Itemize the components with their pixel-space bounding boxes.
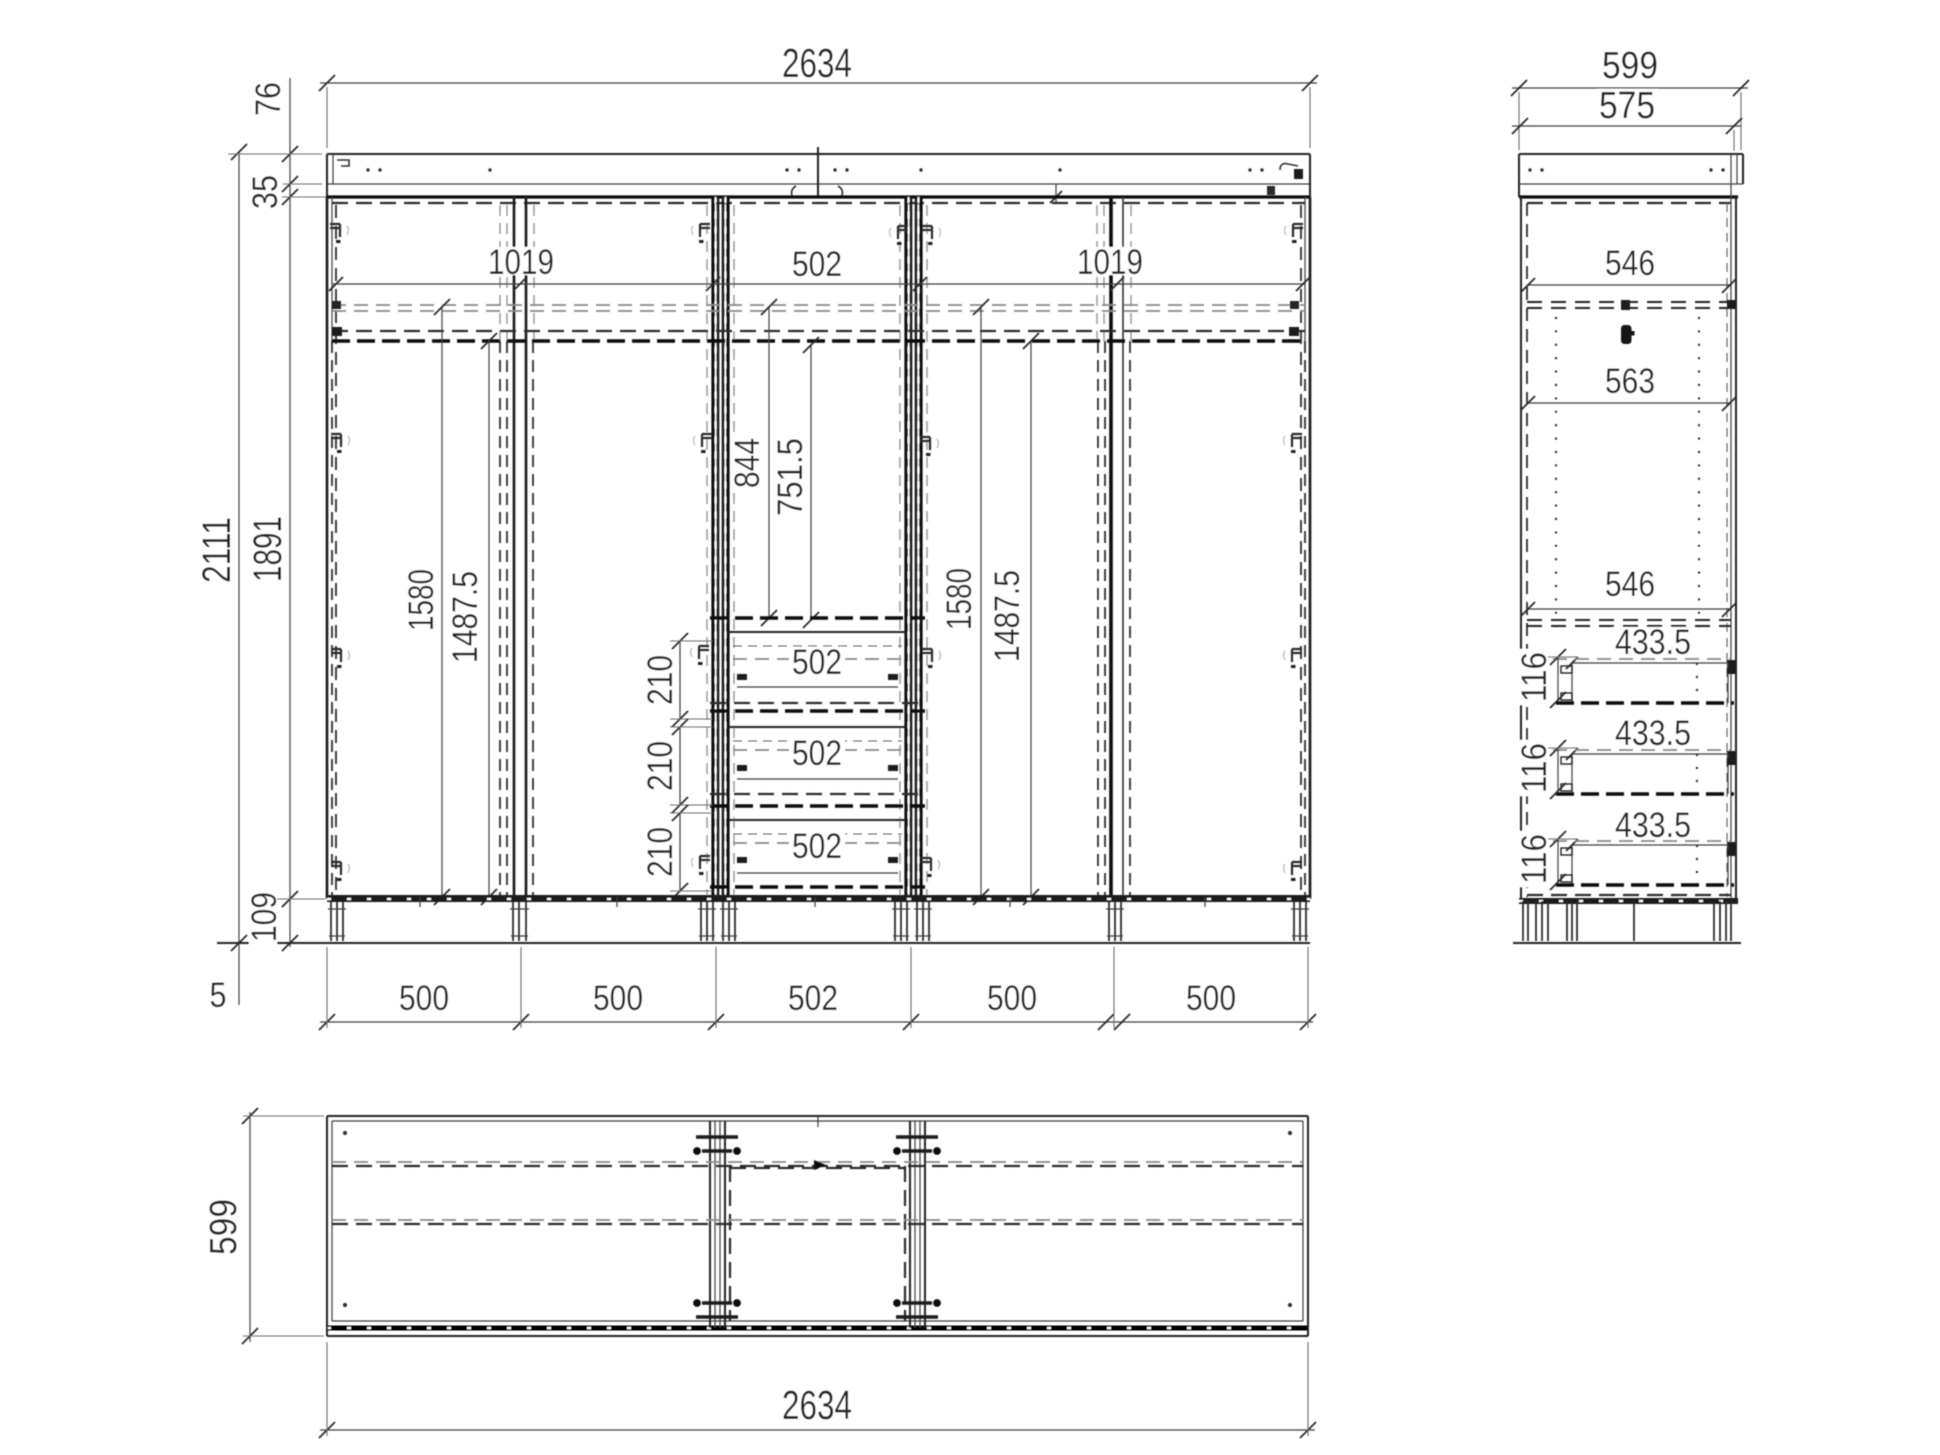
svg-text:1019: 1019 <box>1077 243 1143 282</box>
svg-text:433.5: 433.5 <box>1615 806 1691 845</box>
svg-text:500: 500 <box>1186 979 1236 1018</box>
svg-text:2634: 2634 <box>782 40 852 86</box>
svg-text:500: 500 <box>593 979 643 1018</box>
svg-text:599: 599 <box>1602 45 1658 87</box>
svg-text:433.5: 433.5 <box>1615 623 1691 662</box>
svg-text:500: 500 <box>987 979 1037 1018</box>
svg-text:502: 502 <box>788 979 838 1018</box>
svg-text:109: 109 <box>245 892 284 942</box>
svg-text:210: 210 <box>641 827 680 877</box>
svg-text:844: 844 <box>728 438 767 488</box>
svg-text:2111: 2111 <box>195 517 239 583</box>
svg-text:751.5: 751.5 <box>771 438 810 516</box>
svg-text:210: 210 <box>641 655 680 705</box>
svg-text:1019: 1019 <box>488 243 554 282</box>
svg-text:502: 502 <box>792 643 842 682</box>
svg-text:35: 35 <box>246 175 285 209</box>
svg-text:116: 116 <box>1515 652 1554 702</box>
svg-text:599: 599 <box>203 1199 245 1255</box>
svg-text:1891: 1891 <box>246 516 290 582</box>
svg-text:546: 546 <box>1605 244 1655 283</box>
svg-text:502: 502 <box>792 245 842 284</box>
svg-text:502: 502 <box>792 734 842 773</box>
svg-text:1580: 1580 <box>940 568 979 630</box>
svg-text:116: 116 <box>1515 834 1554 884</box>
svg-text:433.5: 433.5 <box>1615 714 1691 753</box>
svg-text:76: 76 <box>249 82 288 116</box>
svg-text:1580: 1580 <box>402 569 441 631</box>
svg-text:1487.5: 1487.5 <box>446 571 485 663</box>
svg-text:502: 502 <box>792 827 842 866</box>
svg-text:210: 210 <box>641 741 680 791</box>
svg-text:546: 546 <box>1605 565 1655 604</box>
svg-text:5: 5 <box>210 976 227 1015</box>
svg-text:1487.5: 1487.5 <box>988 570 1027 662</box>
svg-text:500: 500 <box>399 979 449 1018</box>
svg-text:563: 563 <box>1605 362 1655 401</box>
svg-text:2634: 2634 <box>782 1382 852 1428</box>
svg-text:116: 116 <box>1515 743 1554 793</box>
svg-text:575: 575 <box>1599 85 1655 127</box>
